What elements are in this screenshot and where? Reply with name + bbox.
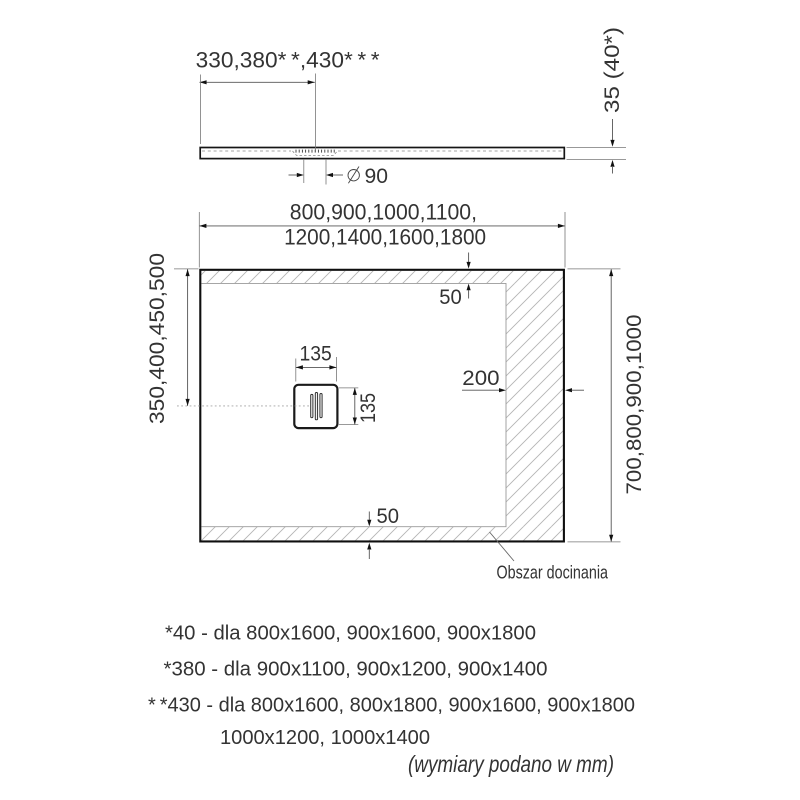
svg-text:200: 200 — [462, 366, 499, 390]
svg-text:*380 - dla 900x1100, 900x1200,: *380 - dla 900x1100, 900x1200, 900x1400 — [164, 658, 548, 680]
svg-text:35 (40*): 35 (40*) — [600, 27, 624, 113]
svg-text:* *430 - dla 800x1600, 800x180: * *430 - dla 800x1600, 800x1800, 900x160… — [148, 694, 635, 716]
svg-text:1000x1200, 1000x1400: 1000x1200, 1000x1400 — [220, 727, 430, 749]
svg-text:90: 90 — [365, 165, 389, 188]
svg-text:(wymiary podano w mm): (wymiary podano w mm) — [408, 751, 614, 777]
svg-text:1200,1400,1600,1800: 1200,1400,1600,1800 — [284, 225, 486, 250]
svg-text:330,380* *,430* * *: 330,380* *,430* * * — [196, 48, 380, 73]
svg-text:*40 - dla 800x1600, 900x1600,: *40 - dla 800x1600, 900x1600, 900x1800 — [165, 622, 536, 644]
svg-text:350,400,450,500: 350,400,450,500 — [145, 253, 169, 424]
svg-text:800,900,1000,1100,: 800,900,1000,1100, — [290, 200, 477, 225]
svg-text:50: 50 — [377, 505, 400, 528]
svg-text:700,800,900,1000: 700,800,900,1000 — [622, 314, 646, 494]
svg-text:Obszar docinania: Obszar docinania — [497, 561, 609, 582]
svg-text:135: 135 — [300, 343, 332, 366]
svg-text:135: 135 — [357, 393, 380, 423]
svg-text:50: 50 — [439, 286, 462, 309]
